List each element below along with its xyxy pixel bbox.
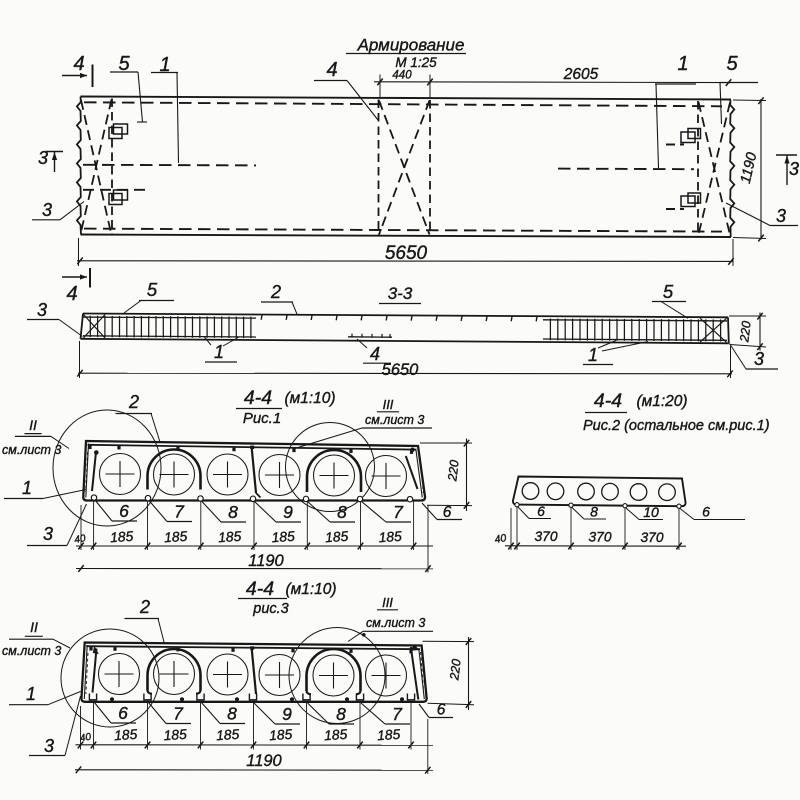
svg-text:5650: 5650 bbox=[382, 361, 420, 379]
svg-text:9: 9 bbox=[283, 502, 293, 522]
svg-text:3: 3 bbox=[37, 300, 47, 320]
svg-text:7: 7 bbox=[173, 704, 184, 724]
svg-text:5: 5 bbox=[726, 53, 738, 75]
svg-text:6: 6 bbox=[119, 501, 129, 521]
svg-text:3: 3 bbox=[776, 206, 786, 226]
svg-text:2: 2 bbox=[128, 392, 139, 412]
svg-text:7: 7 bbox=[393, 502, 404, 522]
svg-text:185: 185 bbox=[271, 529, 295, 546]
svg-text:185: 185 bbox=[216, 727, 240, 744]
svg-text:1: 1 bbox=[677, 53, 688, 75]
svg-text:185: 185 bbox=[218, 529, 242, 546]
svg-text:40: 40 bbox=[494, 532, 508, 546]
svg-text:II: II bbox=[30, 619, 38, 635]
svg-text:2: 2 bbox=[139, 597, 150, 617]
svg-text:3: 3 bbox=[789, 159, 799, 179]
svg-text:7: 7 bbox=[392, 704, 403, 724]
svg-text:8: 8 bbox=[228, 502, 238, 522]
svg-text:185: 185 bbox=[269, 727, 293, 744]
svg-text:220: 220 bbox=[447, 658, 464, 681]
svg-text:см.лист 3: см.лист 3 bbox=[366, 616, 425, 630]
svg-text:185: 185 bbox=[164, 529, 188, 546]
svg-text:3: 3 bbox=[42, 200, 52, 220]
svg-text:9: 9 bbox=[282, 704, 292, 724]
svg-text:4-4: 4-4 bbox=[246, 578, 274, 600]
svg-text:6: 6 bbox=[537, 503, 545, 519]
svg-text:370: 370 bbox=[534, 529, 557, 544]
svg-text:1: 1 bbox=[22, 478, 32, 498]
svg-text:4: 4 bbox=[370, 344, 380, 364]
svg-text:1190: 1190 bbox=[246, 752, 282, 770]
svg-text:8: 8 bbox=[227, 704, 237, 724]
svg-text:220: 220 bbox=[445, 459, 462, 482]
svg-text:рис.3: рис.3 bbox=[252, 601, 288, 617]
svg-text:4-4: 4-4 bbox=[244, 387, 272, 409]
svg-text:4: 4 bbox=[66, 283, 77, 305]
svg-text:2: 2 bbox=[270, 282, 281, 302]
svg-text:6: 6 bbox=[702, 504, 710, 520]
svg-text:см.лист 3: см.лист 3 bbox=[2, 644, 61, 658]
svg-text:440: 440 bbox=[392, 70, 412, 82]
svg-text:см.лист 3: см.лист 3 bbox=[365, 413, 424, 427]
svg-text:185: 185 bbox=[378, 529, 402, 546]
svg-text:Армирование: Армирование bbox=[357, 36, 465, 55]
svg-text:185: 185 bbox=[377, 727, 401, 744]
svg-text:III: III bbox=[383, 397, 394, 412]
svg-text:1: 1 bbox=[214, 342, 224, 362]
svg-text:8: 8 bbox=[336, 704, 346, 724]
svg-text:1: 1 bbox=[588, 345, 598, 365]
svg-text:4: 4 bbox=[73, 53, 84, 75]
svg-text:4: 4 bbox=[326, 59, 337, 81]
svg-text:185: 185 bbox=[324, 727, 348, 744]
svg-text:185: 185 bbox=[325, 529, 349, 546]
svg-text:5650: 5650 bbox=[385, 243, 428, 264]
svg-text:II: II bbox=[29, 417, 37, 433]
svg-text:Рис.1: Рис.1 bbox=[243, 410, 281, 427]
svg-text:10: 10 bbox=[643, 504, 659, 520]
svg-text:(м1:10): (м1:10) bbox=[285, 581, 336, 598]
svg-text:370: 370 bbox=[640, 530, 663, 545]
svg-text:3: 3 bbox=[754, 349, 764, 369]
svg-text:6: 6 bbox=[443, 504, 452, 521]
svg-text:6: 6 bbox=[118, 703, 128, 723]
svg-text:2605: 2605 bbox=[563, 66, 599, 83]
svg-text:см.лист 3: см.лист 3 bbox=[2, 443, 61, 457]
svg-text:4-4: 4-4 bbox=[594, 390, 622, 412]
svg-text:3-3: 3-3 bbox=[388, 284, 413, 303]
svg-text:5: 5 bbox=[663, 281, 674, 302]
svg-text:8: 8 bbox=[590, 504, 598, 520]
svg-text:(м1:10): (м1:10) bbox=[284, 390, 335, 407]
svg-text:3: 3 bbox=[43, 524, 53, 544]
svg-text:7: 7 bbox=[174, 502, 185, 522]
svg-text:8: 8 bbox=[337, 502, 347, 522]
svg-text:5: 5 bbox=[147, 279, 158, 300]
svg-text:1: 1 bbox=[26, 684, 36, 704]
svg-text:1190: 1190 bbox=[248, 552, 284, 570]
svg-text:3: 3 bbox=[44, 736, 54, 756]
svg-text:185: 185 bbox=[163, 727, 187, 744]
svg-text:(м1:20): (м1:20) bbox=[636, 393, 687, 410]
svg-text:III: III bbox=[382, 595, 393, 610]
svg-text:220: 220 bbox=[737, 320, 754, 343]
svg-text:370: 370 bbox=[588, 530, 611, 545]
svg-text:185: 185 bbox=[114, 727, 138, 744]
svg-text:185: 185 bbox=[110, 529, 134, 546]
svg-text:М 1:25: М 1:25 bbox=[395, 55, 437, 70]
svg-text:Рис.2 (остальное см.рис.1): Рис.2 (остальное см.рис.1) bbox=[583, 418, 770, 434]
